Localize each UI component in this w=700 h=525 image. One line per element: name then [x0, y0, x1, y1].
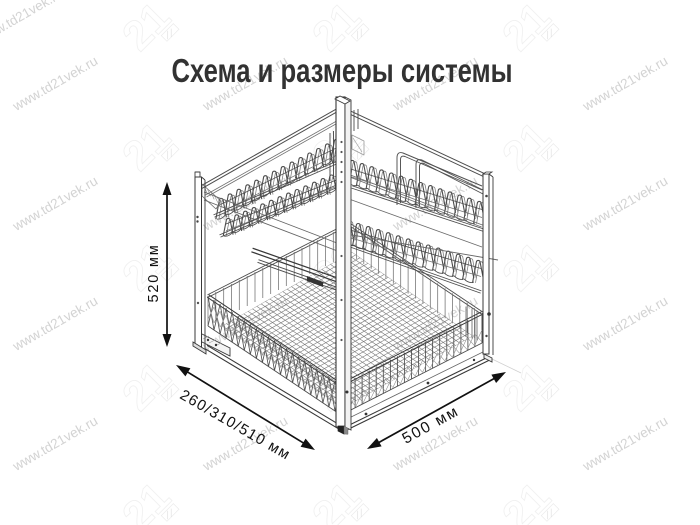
- svg-text:520 мм: 520 мм: [146, 244, 162, 303]
- svg-text:Схема и размеры системы: Схема и размеры системы: [172, 52, 513, 89]
